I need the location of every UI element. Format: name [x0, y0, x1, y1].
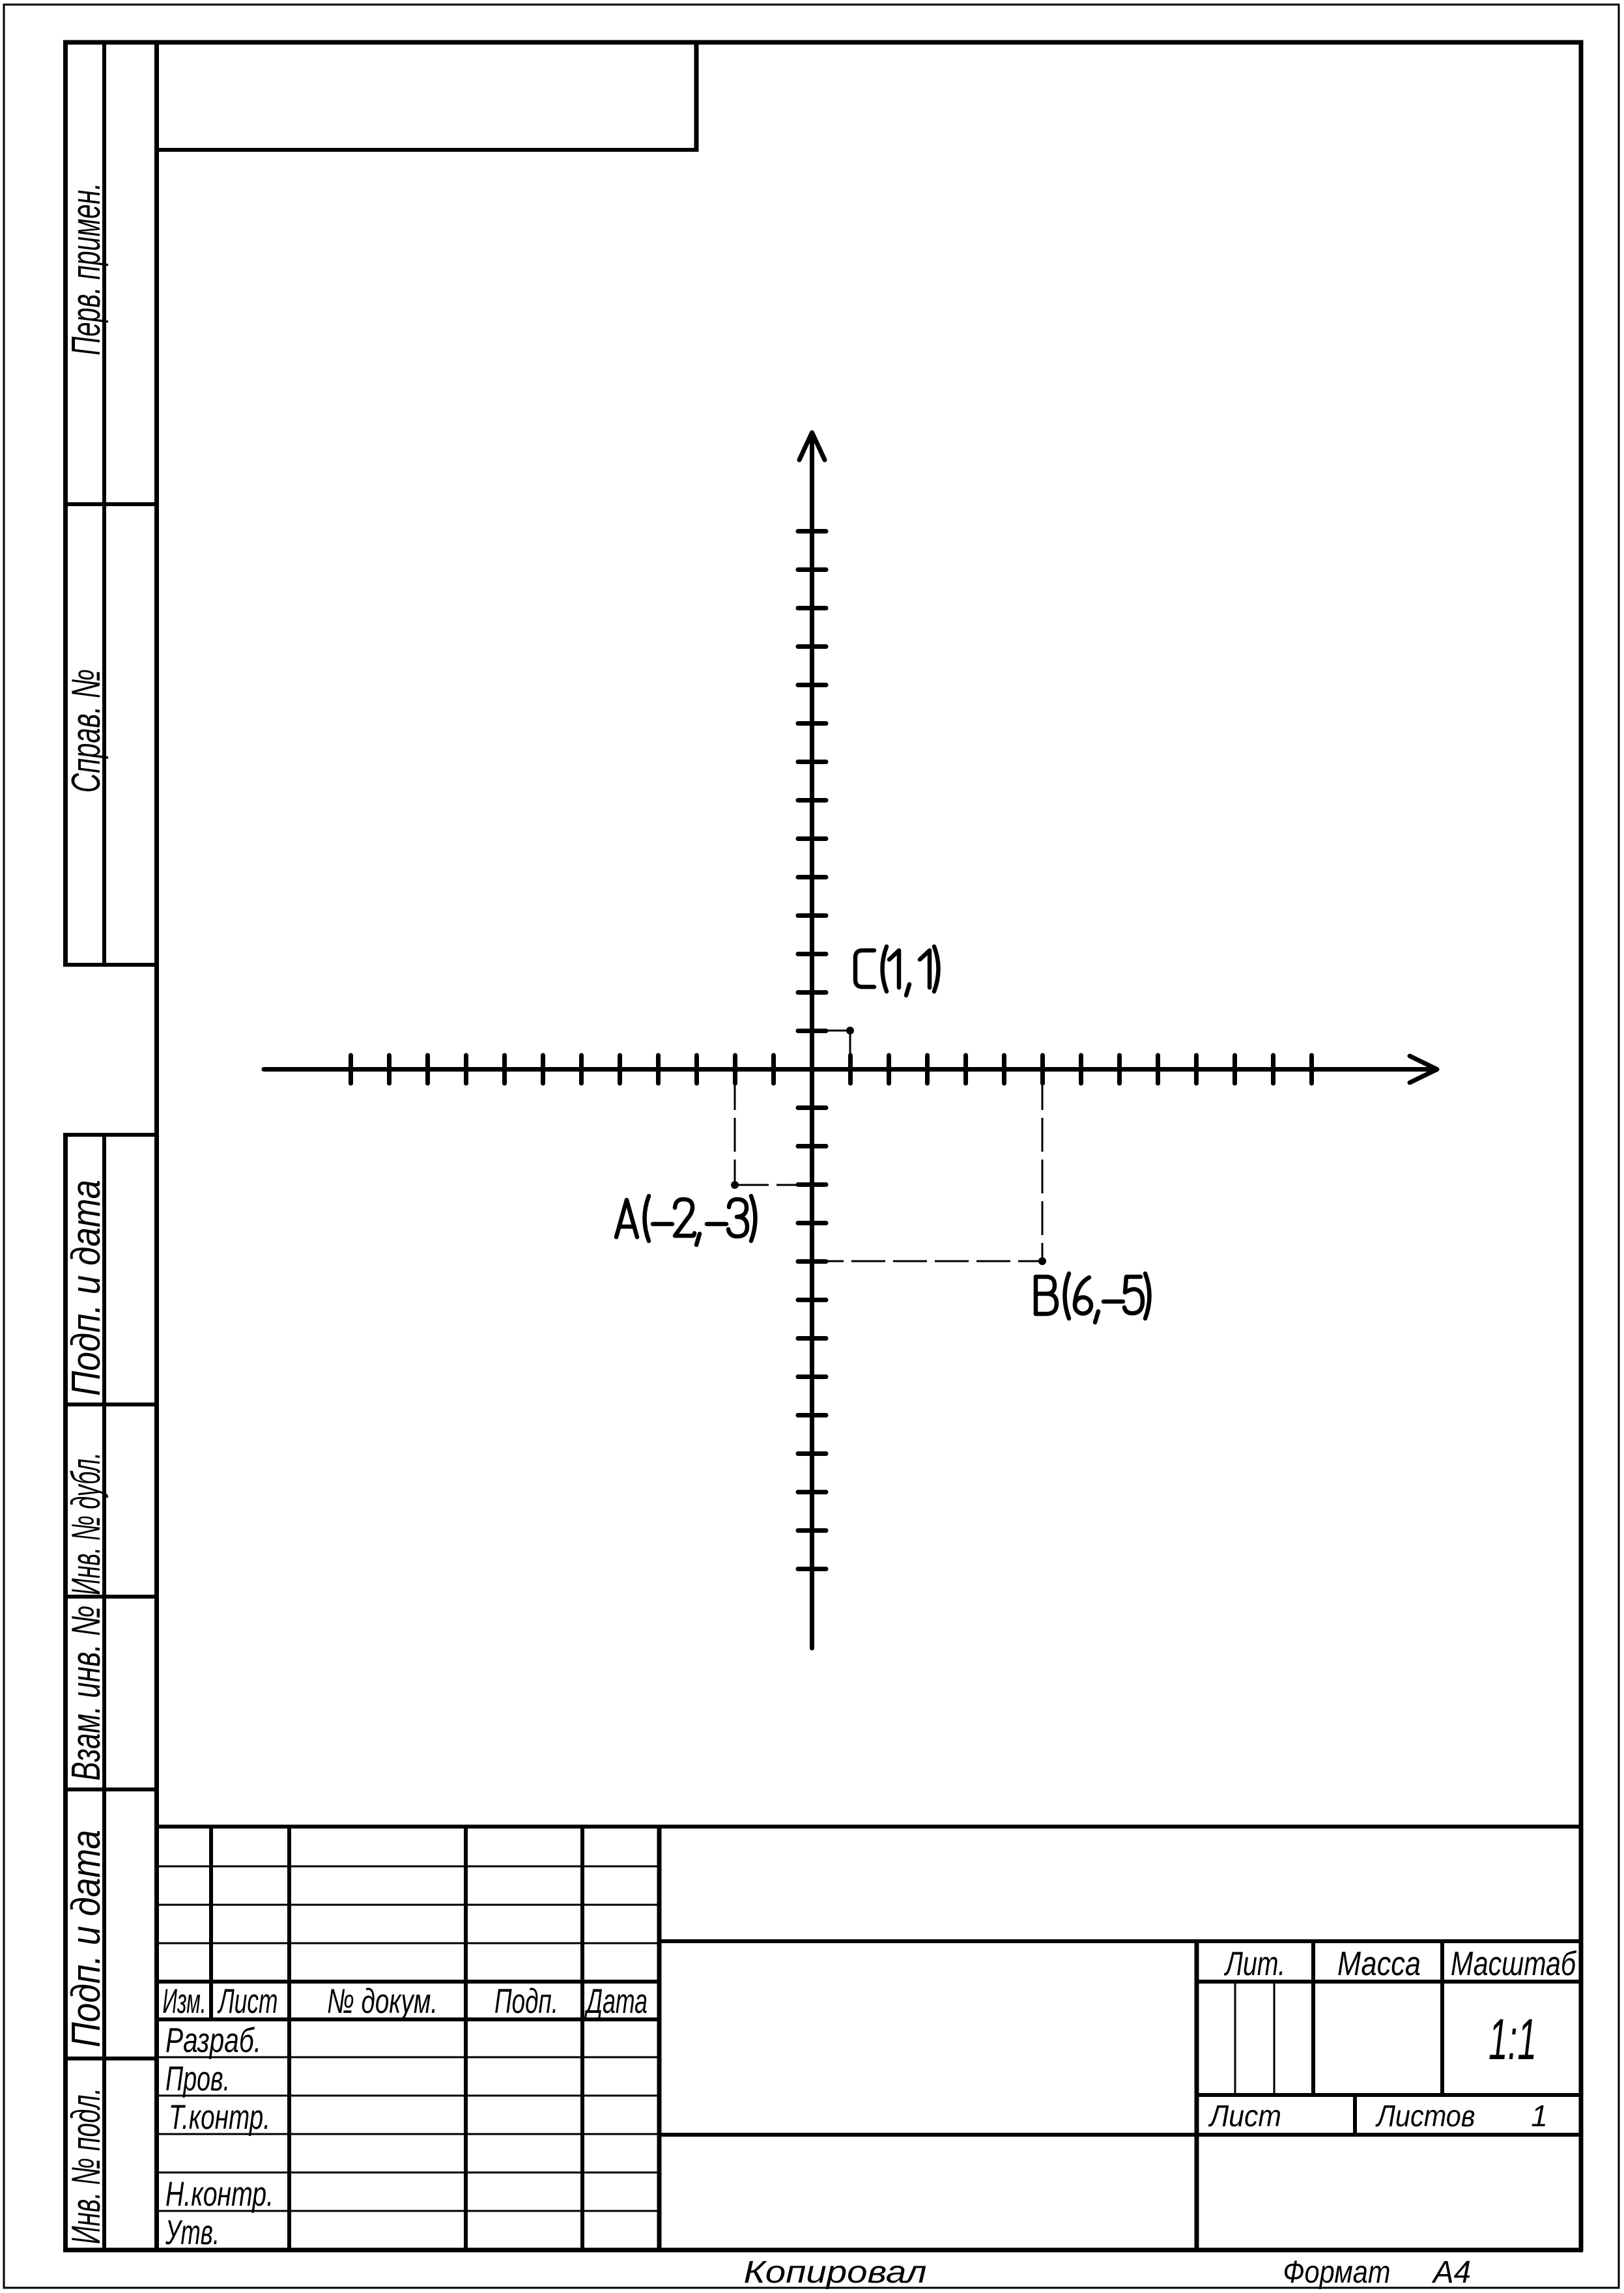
svg-text:Разраб.: Разраб. — [165, 2021, 261, 2060]
svg-text:Изм.: Изм. — [163, 1982, 207, 2021]
svg-text:Масса: Масса — [1337, 1945, 1421, 1983]
svg-text:Формат: Формат — [1283, 2255, 1391, 2290]
svg-text:1: 1 — [1531, 2099, 1548, 2133]
svg-text:№ докум.: № докум. — [327, 1982, 438, 2021]
svg-text:Лит.: Лит. — [1224, 1945, 1285, 1983]
svg-text:Подп. и дата: Подп. и дата — [64, 1180, 109, 1396]
svg-text:Лист: Лист — [1208, 2099, 1281, 2133]
svg-text:Подп. и дата: Подп. и дата — [64, 1830, 109, 2047]
svg-text:Копировал: Копировал — [744, 2255, 927, 2290]
svg-text:А4: А4 — [1431, 2255, 1471, 2290]
svg-text:Лист: Лист — [217, 1982, 278, 2021]
svg-text:Пров.: Пров. — [165, 2060, 230, 2098]
svg-text:Справ. №: Справ. № — [64, 669, 109, 793]
svg-text:Инв. № дубл.: Инв. № дубл. — [64, 1453, 109, 1595]
svg-text:Т.контр.: Т.контр. — [169, 2098, 270, 2137]
svg-text:Масштаб: Масштаб — [1451, 1945, 1576, 1983]
svg-text:1:1: 1:1 — [1489, 2006, 1537, 2072]
svg-text:Взам. инв. №: Взам. инв. № — [64, 1606, 109, 1781]
svg-text:Утв.: Утв. — [165, 2214, 220, 2252]
svg-text:Листов: Листов — [1375, 2099, 1475, 2133]
svg-text:Дата: Дата — [584, 1982, 648, 2021]
svg-text:Подп.: Подп. — [494, 1982, 558, 2021]
svg-text:Н.контр.: Н.контр. — [165, 2175, 274, 2214]
svg-text:Перв. примен.: Перв. примен. — [64, 183, 109, 356]
svg-text:Инв. № подл.: Инв. № подл. — [64, 2088, 109, 2244]
